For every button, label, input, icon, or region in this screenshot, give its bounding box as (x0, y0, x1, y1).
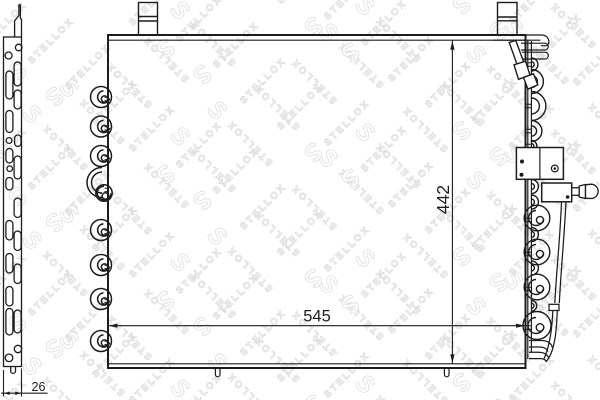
svg-text:STELLOX: STELLOX (470, 202, 521, 253)
svg-text:STELLOX: STELLOX (470, 76, 521, 127)
svg-text:442: 442 (433, 185, 453, 214)
svg-text:STELLOX: STELLOX (585, 225, 600, 276)
svg-text:545: 545 (303, 308, 331, 326)
svg-text:STELLOX: STELLOX (40, 373, 91, 400)
svg-text:STELLOX: STELLOX (507, 102, 558, 153)
svg-text:STELLOX: STELLOX (373, 391, 424, 400)
svg-text:STELLOX: STELLOX (90, 330, 141, 381)
svg-text:STELLOX: STELLOX (0, 378, 30, 400)
svg-text:STELLOX: STELLOX (127, 230, 178, 281)
svg-text:STELLOX: STELLOX (400, 355, 451, 400)
svg-text:STELLOX: STELLOX (26, 142, 77, 193)
svg-text:STELLOX: STELLOX (585, 351, 600, 400)
svg-text:STELLOX: STELLOX (336, 165, 387, 216)
svg-text:STELLOX: STELLOX (90, 78, 141, 129)
svg-text:STELLOX: STELLOX (336, 291, 387, 342)
svg-text:STELLOX: STELLOX (26, 16, 77, 67)
svg-text:STELLOX: STELLOX (585, 99, 600, 150)
svg-text:STELLOX: STELLOX (26, 268, 77, 319)
svg-text:STELLOX: STELLOX (507, 0, 558, 26)
svg-text:STELLOX: STELLOX (548, 377, 599, 400)
svg-text:STELLOX: STELLOX (0, 126, 30, 177)
svg-text:STELLOX: STELLOX (400, 229, 451, 280)
svg-text:STELLOX: STELLOX (470, 328, 521, 379)
svg-text:STELLOX: STELLOX (127, 0, 178, 28)
svg-text:STELLOX: STELLOX (90, 0, 141, 2)
svg-text:STELLOX: STELLOX (127, 356, 178, 400)
svg-text:STELLOX: STELLOX (0, 252, 30, 303)
svg-text:STELLOX: STELLOX (336, 39, 387, 90)
svg-text:26: 26 (32, 380, 46, 394)
svg-text:STELLOX: STELLOX (275, 0, 326, 6)
svg-text:STELLOX: STELLOX (127, 104, 178, 155)
svg-text:STELLOX: STELLOX (400, 103, 451, 154)
svg-text:STELLOX: STELLOX (225, 369, 276, 400)
svg-text:STELLOX: STELLOX (507, 354, 558, 400)
